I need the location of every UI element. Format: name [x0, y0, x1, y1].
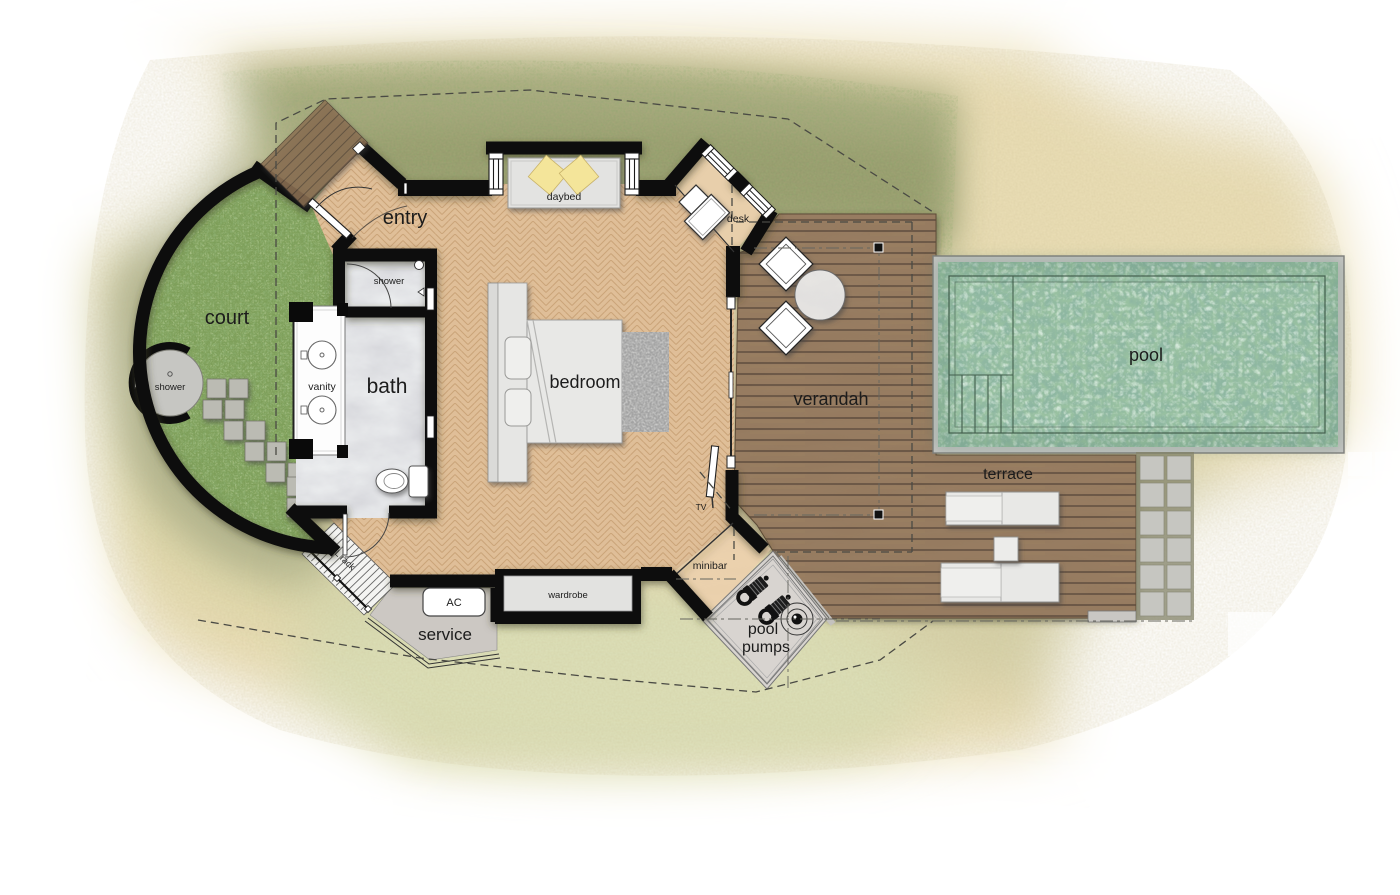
svg-text:desk: desk — [727, 213, 750, 225]
svg-text:pumps: pumps — [742, 639, 790, 656]
svg-text:bath: bath — [367, 375, 408, 398]
svg-text:AC: AC — [446, 597, 461, 609]
svg-text:pool: pool — [748, 621, 778, 638]
svg-text:daybed: daybed — [547, 191, 582, 203]
svg-text:court: court — [205, 307, 250, 329]
svg-text:entry: entry — [383, 207, 427, 229]
svg-text:pool: pool — [1129, 345, 1163, 365]
svg-text:minibar: minibar — [693, 560, 728, 572]
svg-text:shower: shower — [155, 382, 186, 393]
svg-text:shower: shower — [374, 276, 405, 287]
svg-text:vanity: vanity — [308, 381, 336, 393]
svg-text:TV: TV — [696, 502, 707, 512]
svg-text:bedroom: bedroom — [549, 372, 620, 392]
svg-text:service: service — [418, 625, 472, 644]
svg-text:verandah: verandah — [793, 389, 868, 409]
svg-text:terrace: terrace — [983, 466, 1033, 483]
svg-text:wardrobe: wardrobe — [547, 590, 588, 601]
